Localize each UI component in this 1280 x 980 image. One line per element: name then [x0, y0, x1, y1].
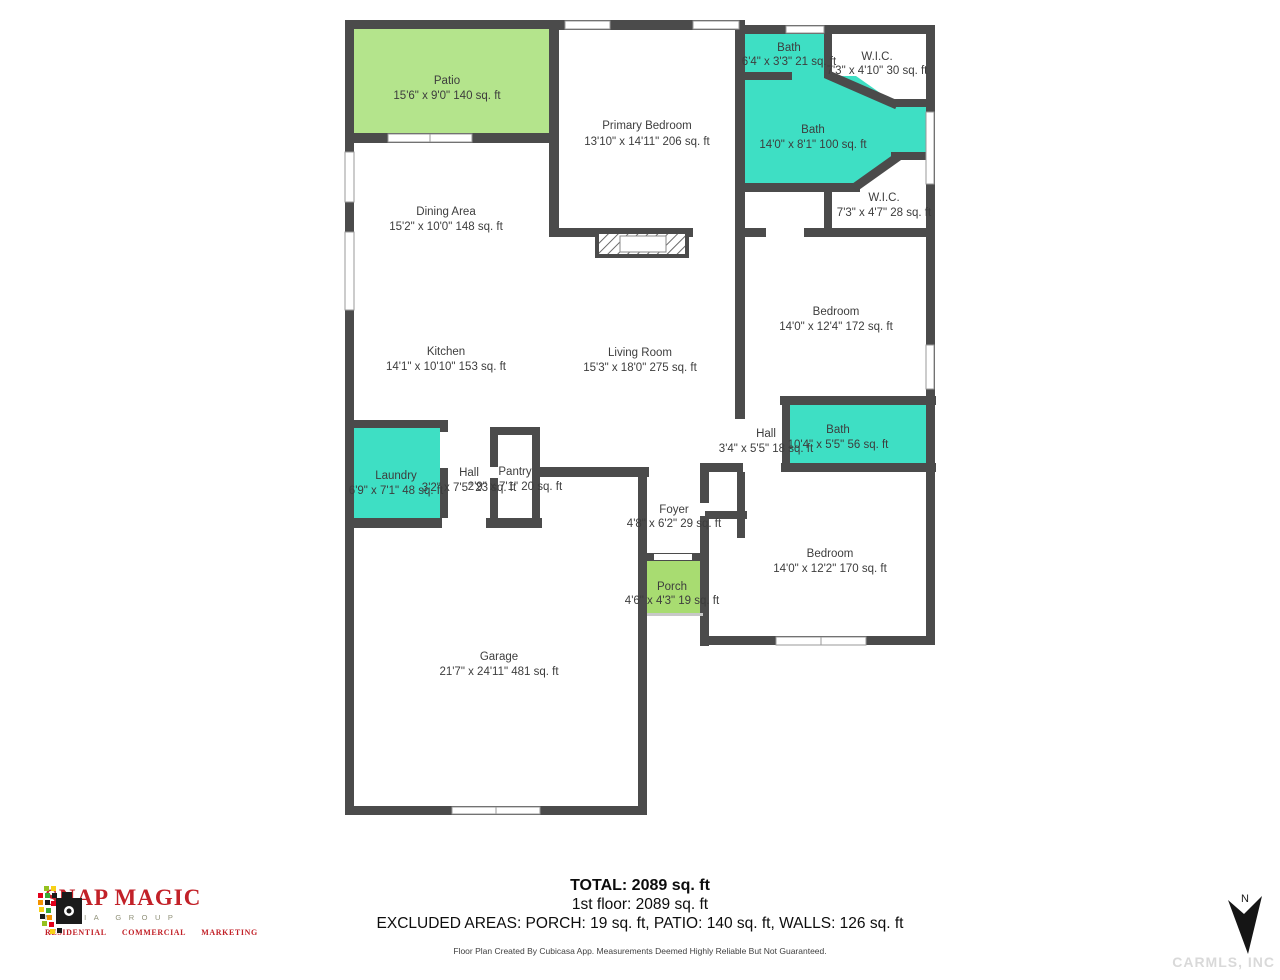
label-pantry-dims: 2'9" x 7'1" 20 sq. ft: [468, 481, 563, 493]
compass: N: [1218, 892, 1278, 905]
north-arrow-icon: [1218, 892, 1274, 958]
room-bath-hall-fill: [785, 400, 928, 466]
label-bath3: Bath: [826, 424, 850, 436]
label-dining: Dining Area: [416, 206, 476, 218]
label-bath2: Bath: [801, 124, 825, 136]
label-foyer: Foyer: [659, 504, 689, 516]
label-garage: Garage: [480, 651, 518, 663]
label-wic1: W.I.C.: [861, 51, 892, 63]
label-hall1: Hall: [756, 428, 776, 440]
label-kitchen-dims: 14'1" x 10'10" 153 sq. ft: [386, 361, 507, 373]
disclaimer-text: Floor Plan Created By Cubicasa App. Meas…: [0, 946, 1280, 956]
label-kitchen: Kitchen: [427, 346, 465, 358]
label-garage-dims: 21'7" x 24'11" 481 sq. ft: [439, 666, 559, 678]
room-bath-top-fill: [740, 30, 830, 78]
label-bedroom2: Bedroom: [807, 548, 854, 560]
label-wic1-dims: 7'3" x 4'10" 30 sq. ft: [827, 65, 929, 77]
label-foyer-dims: 4'8" x 6'2" 29 sq. ft: [627, 518, 722, 530]
label-laundry: Laundry: [375, 470, 417, 482]
label-bedroom2-dims: 14'0" x 12'2" 170 sq. ft: [773, 563, 887, 575]
label-primary-dims: 13'10" x 14'11" 206 sq. ft: [584, 136, 710, 148]
label-bath3-dims: 10'4" x 5'5" 56 sq. ft: [788, 439, 890, 451]
floor-plan-drawing: Patio 15'6" x 9'0" 140 sq. ft Primary Be…: [0, 0, 1280, 980]
floor-plan-page: Patio 15'6" x 9'0" 140 sq. ft Primary Be…: [0, 0, 1280, 980]
label-porch: Porch: [657, 581, 687, 593]
label-wic2-dims: 7'3" x 4'7" 28 sq. ft: [837, 207, 932, 219]
label-living: Living Room: [608, 347, 672, 359]
label-porch-dims: 4'6" x 4'3" 19 sq. ft: [625, 595, 720, 607]
label-bedroom1-dims: 14'0" x 12'4" 172 sq. ft: [779, 321, 893, 333]
label-wic2: W.I.C.: [868, 192, 899, 204]
label-patio: Patio: [434, 75, 460, 87]
camera-pixel-icon: [38, 886, 86, 938]
label-bath2-dims: 14'0" x 8'1" 100 sq. ft: [759, 139, 867, 151]
label-bath1: Bath: [777, 42, 801, 54]
label-living-dims: 15'3" x 18'0" 275 sq. ft: [583, 362, 697, 374]
label-pantry: Pantry: [498, 466, 531, 478]
fireplace: [597, 232, 687, 256]
label-hall2: Hall: [459, 467, 479, 479]
label-bath1-dims: 6'4" x 3'3" 21 sq. ft: [742, 56, 837, 68]
room-bath-main-fill: [745, 76, 928, 188]
label-primary: Primary Bedroom: [602, 120, 691, 132]
label-patio-dims: 15'6" x 9'0" 140 sq. ft: [393, 90, 501, 102]
watermark-text: CARMLS, INC: [1172, 954, 1275, 970]
label-bedroom1: Bedroom: [813, 306, 860, 318]
snap-magic-logo: SNAP MAGIC MEDIA GROUP RESIDENTIAL COMME…: [38, 886, 258, 937]
label-dining-dims: 15'2" x 10'0" 148 sq. ft: [389, 221, 503, 233]
